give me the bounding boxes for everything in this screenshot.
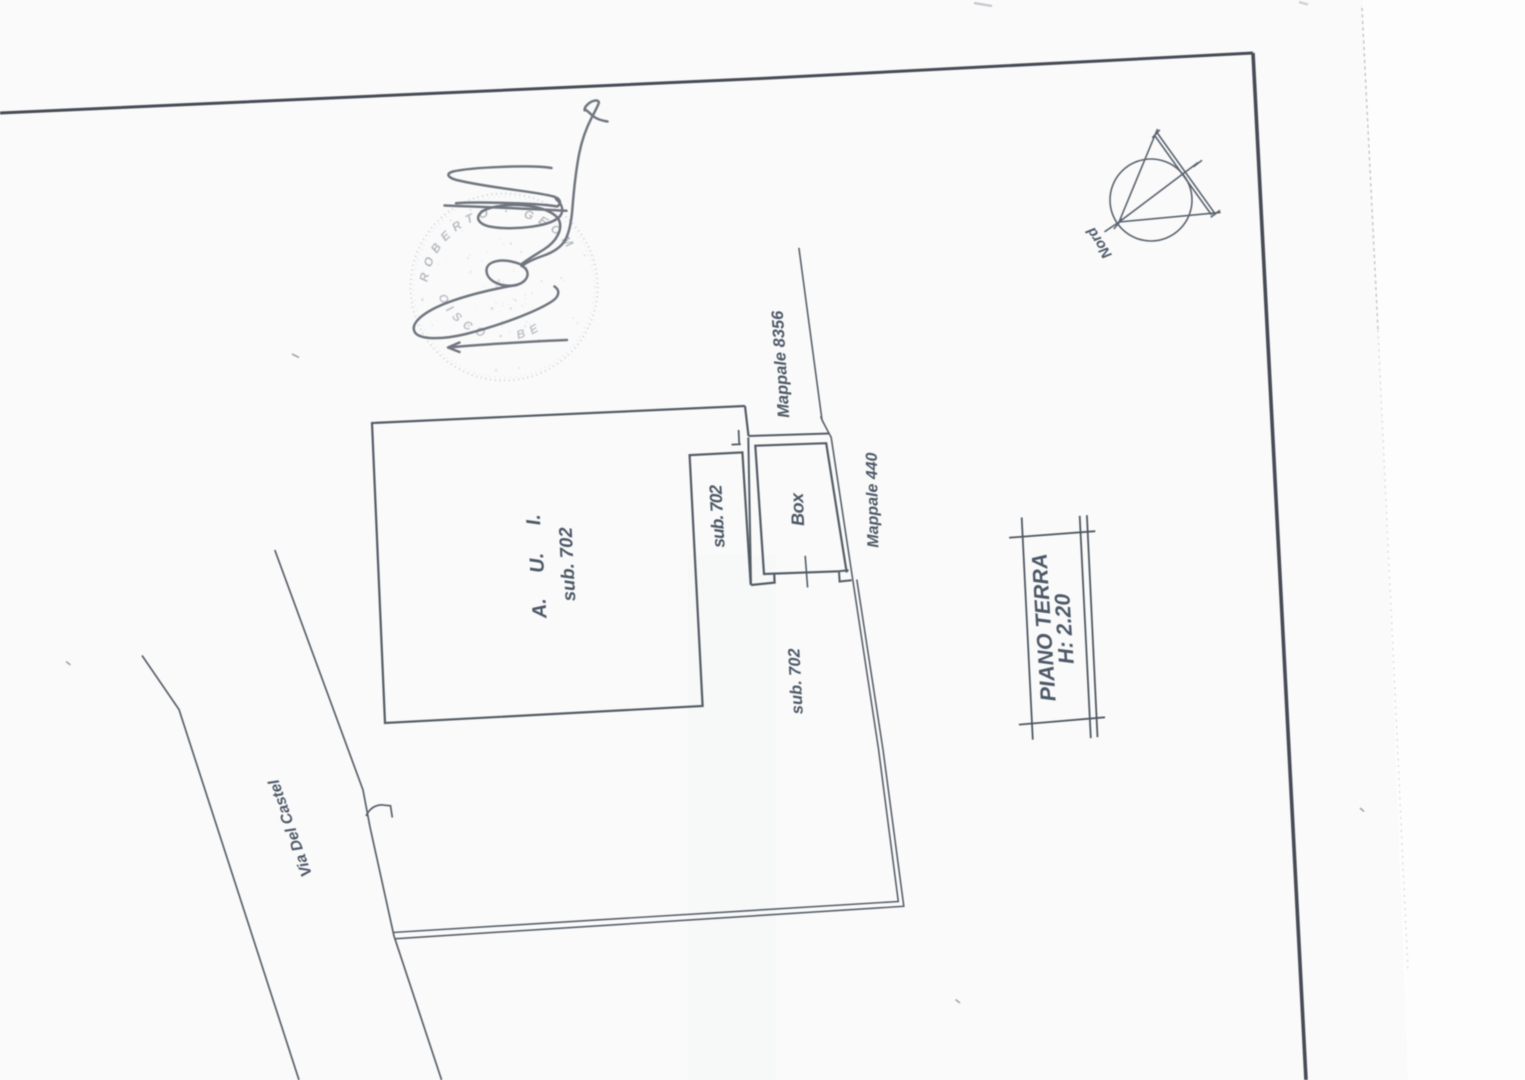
svg-text:Mappale 440: Mappale 440: [864, 452, 883, 548]
svg-text:I.: I.: [523, 514, 546, 526]
svg-text:sub. 702: sub. 702: [555, 526, 580, 602]
svg-text:sub. 702: sub. 702: [705, 484, 728, 548]
svg-text:U.: U.: [526, 552, 549, 573]
svg-text:H: 2.20: H: 2.20: [1050, 593, 1078, 665]
svg-text:A.: A.: [528, 598, 551, 620]
svg-text:Box: Box: [787, 492, 808, 527]
svg-text:sub. 702: sub. 702: [785, 648, 806, 715]
